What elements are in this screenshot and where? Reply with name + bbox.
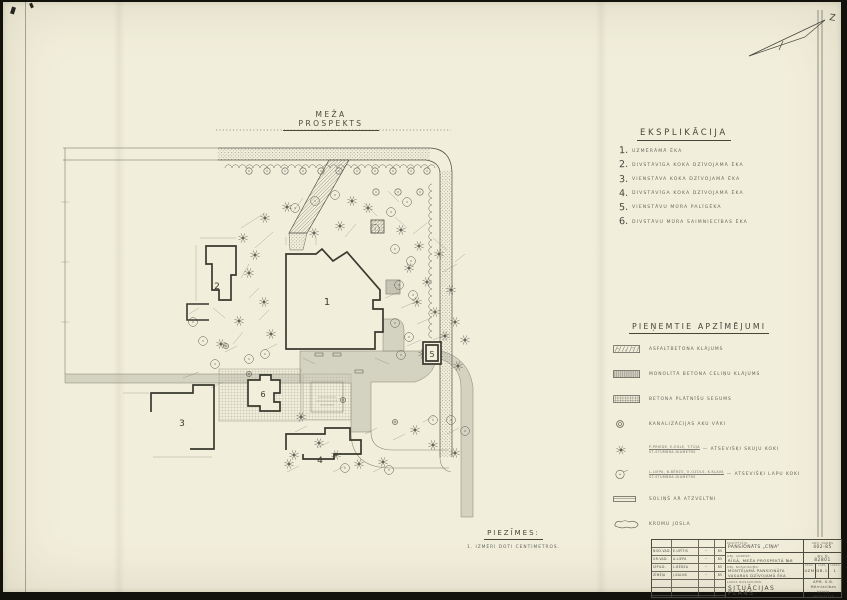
signature-row: ZĪMĒJA J.KALNS ~ 85 bbox=[652, 572, 725, 580]
explication-item-number: 4. bbox=[619, 189, 632, 198]
explication-item-number: 5. bbox=[619, 203, 632, 212]
client-cell: PASŪTĪTĀJS: PANSIONĀTS „CĪŅA” bbox=[726, 540, 804, 553]
legend-item-species: P-PRIEDE, E-EGLE, T-TŪJAST-STUMBRA DIAME… bbox=[649, 445, 700, 455]
sheet: 123456 MEŽA PROSPEKTS Z EKSPLIKĀCIJA 1. … bbox=[3, 2, 841, 592]
street-label: MEŽA PROSPEKTS bbox=[283, 110, 379, 131]
notes-block: PIEZĪMES: 1. IZMĒRI DOTI CENTIMETROS. bbox=[441, 520, 586, 550]
legend-swatch-deciduous-icon bbox=[613, 465, 649, 484]
legend-item-text: KANALIZĀCIJAS AKU VĀKI bbox=[649, 422, 726, 427]
notes-heading: PIEZĪMES: bbox=[484, 529, 543, 540]
signature-date: 85 bbox=[715, 556, 725, 563]
legend-item-text: MONOLĪTĀ BETONA CELIŅU KLĀJUMS bbox=[649, 372, 760, 377]
building-label: 1 bbox=[324, 297, 330, 308]
legend-item-text: BETONA PLĀTNĪŠU SEGUMS bbox=[649, 397, 732, 402]
legend-swatch-shrub-icon bbox=[613, 515, 649, 534]
legend-block: PIEŅEMTIE APZĪMĒJUMI ASFALTBETONA KLĀJUM… bbox=[613, 314, 847, 534]
explication-item-text: DIVSTĀVU MŪRA SAIMNIECĪBAS ĒKA bbox=[632, 217, 748, 225]
address-value: RĪGĀ, MEŽA PROSPEKTĀ №8 bbox=[726, 558, 803, 563]
building-label: 5 bbox=[429, 350, 434, 359]
legend-item: BETONA PLĀTNĪŠU SEGUMS bbox=[613, 390, 847, 409]
signature-mark bbox=[699, 596, 715, 597]
explication-block: EKSPLIKĀCIJA 1. UZMĒRĀMĀ ĒKA2. DIVSTĀVĪG… bbox=[619, 120, 784, 226]
stage-value: UZM bbox=[804, 568, 815, 573]
order-label: ARH. DARBS bbox=[804, 540, 841, 545]
signature-date: 85 bbox=[715, 548, 725, 555]
legend-item-text: — ATSEVIŠĶI LAPU KOKI bbox=[727, 472, 800, 477]
legend-swatch-asphalt-icon bbox=[613, 340, 649, 359]
signature-section: NOD.VAD. E.UPĪTIS ~ 85GR.VAD. A.LIEPA ~ … bbox=[652, 540, 726, 597]
legend-swatch-slabs-icon bbox=[613, 390, 649, 409]
signature-name bbox=[672, 540, 699, 547]
signature-name: E.UPĪTIS bbox=[672, 548, 699, 555]
signature-name: A.LIEPA bbox=[672, 556, 699, 563]
north-label: Z bbox=[829, 13, 837, 24]
sheet-value: DB-1 bbox=[816, 568, 828, 573]
legend-item: MONOLĪTĀ BETONA CELIŅU KLĀJUMS bbox=[613, 365, 847, 384]
signature-name bbox=[672, 580, 699, 587]
signature-row bbox=[652, 588, 725, 596]
building-label: 3 bbox=[179, 419, 185, 429]
explication-items: 1. UZMĒRĀMĀ ĒKA2. DIVSTĀVĪGA KOKA DZĪVOJ… bbox=[619, 146, 784, 226]
inventory-value: 82801 bbox=[804, 558, 841, 563]
explication-item-text: VIENSTĀVU MŪRA PALĪGĒKA bbox=[632, 203, 722, 211]
legend-item-text: KRŪMU JOSLA bbox=[649, 522, 691, 527]
explication-item-text: DIVSTĀVĪGA KOKA DZĪVOJAMĀ ĒKA bbox=[632, 189, 744, 197]
sheetname-cell: LAPAS NOSAUKUMS: SITUĀCIJAS PLĀNS bbox=[726, 579, 804, 597]
explication-item-number: 6. bbox=[619, 217, 632, 226]
signature-row: GR.VAD. A.LIEPA ~ 85 bbox=[652, 556, 725, 564]
signature-mark: ~ bbox=[699, 572, 715, 579]
explication-item-text: UZMĒRĀMĀ ĒKA bbox=[632, 146, 682, 154]
order-value: 402-85 bbox=[804, 545, 841, 550]
signature-date bbox=[715, 596, 725, 597]
address-label: OBJ. ADRESE: bbox=[726, 553, 803, 558]
sheetname-value: SITUĀCIJAS PLĀNS bbox=[726, 584, 803, 596]
title-block: NOD.VAD. E.UPĪTIS ~ 85GR.VAD. A.LIEPA ~ … bbox=[651, 539, 842, 598]
org-line2: Mērniecības birojs bbox=[804, 585, 841, 595]
signature-row: NOD.VAD. E.UPĪTIS ~ 85 bbox=[652, 548, 725, 556]
sheet-label: LAPA bbox=[816, 564, 828, 568]
explication-item-text: VIENSTĀVA KOKA DZĪVOJAMĀ ĒKA bbox=[632, 175, 740, 183]
signature-row bbox=[652, 540, 725, 548]
note-line: 1. IZMĒRI DOTI CENTIMETROS. bbox=[441, 545, 586, 550]
signature-role: NOD.VAD. bbox=[652, 548, 672, 555]
building-label: 6 bbox=[260, 390, 265, 399]
inventory-cell: INV. № 82801 bbox=[804, 553, 841, 564]
object-label: OBJ. NOSAUKUMS: bbox=[726, 564, 803, 569]
north-arrow-icon: Z bbox=[741, 6, 845, 62]
building-label: 2 bbox=[214, 282, 220, 292]
client-value: PANSIONĀTS „CĪŅA” bbox=[726, 545, 803, 550]
signature-name bbox=[672, 596, 699, 597]
signature-mark bbox=[699, 540, 715, 547]
legend-item-species: L-LIEPA, B-BĒRZS, O-OZOLS, K-KĻAVAST-STU… bbox=[649, 470, 724, 480]
signature-date: 85 bbox=[715, 572, 725, 579]
legend-items: ASFALTBETONA KLĀJUMS MONOLĪTĀ BETONA CEL… bbox=[613, 340, 847, 534]
signature-row bbox=[652, 596, 725, 597]
signature-date bbox=[715, 588, 725, 595]
sheets-label: LAPAS bbox=[829, 564, 841, 568]
legend-item: L-LIEPA, B-BĒRZS, O-OZOLS, K-KĻAVAST-STU… bbox=[613, 465, 847, 484]
client-label: PASŪTĪTĀJS: bbox=[726, 540, 803, 545]
explication-item: 1. UZMĒRĀMĀ ĒKA bbox=[619, 146, 784, 155]
signature-name bbox=[672, 588, 699, 595]
legend-item: KRŪMU JOSLA bbox=[613, 515, 847, 534]
explication-item: 5. VIENSTĀVU MŪRA PALĪGĒKA bbox=[619, 203, 784, 212]
signature-mark: ~ bbox=[699, 564, 715, 571]
explication-item-number: 1. bbox=[619, 146, 632, 155]
legend-swatch-concrete-icon bbox=[613, 365, 649, 384]
signature-role bbox=[652, 596, 672, 597]
explication-item: 3. VIENSTĀVA KOKA DZĪVOJAMĀ ĒKA bbox=[619, 175, 784, 184]
legend-item: ASFALTBETONA KLĀJUMS bbox=[613, 340, 847, 359]
signature-date: 85 bbox=[715, 564, 725, 571]
organization-cell: APM. K.B. Mērniecības birojs INSTITŪTS bbox=[804, 579, 841, 597]
signature-row: IZPILD. L.BĒRZA ~ 85 bbox=[652, 564, 725, 572]
org-line3: INSTITŪTS bbox=[804, 595, 841, 597]
explication-heading: EKSPLIKĀCIJA bbox=[637, 128, 731, 141]
explication-item-number: 3. bbox=[619, 174, 632, 183]
object-cell: OBJ. NOSAUKUMS: MONTĒJAMĀ PANSIONĀTA VAS… bbox=[726, 564, 804, 579]
legend-swatch-manhole-icon bbox=[613, 415, 649, 434]
stage-cell: STAD. UZM bbox=[804, 564, 816, 579]
legend-item: P-PRIEDE, E-EGLE, T-TŪJAST-STUMBRA DIAME… bbox=[613, 440, 847, 459]
legend-item-text: ASFALTBETONA KLĀJUMS bbox=[649, 347, 723, 352]
signature-role bbox=[652, 588, 672, 595]
signature-role bbox=[652, 580, 672, 587]
signature-role: GR.VAD. bbox=[652, 556, 672, 563]
signature-role: ZĪMĒJA bbox=[652, 572, 672, 579]
signature-row bbox=[652, 580, 725, 588]
legend-heading: PIEŅEMTIE APZĪMĒJUMI bbox=[629, 322, 769, 334]
explication-item: 4. DIVSTĀVĪGA KOKA DZĪVOJAMĀ ĒKA bbox=[619, 189, 784, 198]
order-cell: ARH. DARBS 402-85 bbox=[804, 540, 841, 553]
signature-date bbox=[715, 540, 725, 547]
signature-mark bbox=[699, 588, 715, 595]
sheets-value: 1 bbox=[829, 568, 841, 573]
legend-item: SOLIŅŠ AR ATZVELTNI bbox=[613, 490, 847, 509]
legend-item-text: — ATSEVIŠĶI SKUJU KOKI bbox=[703, 447, 779, 452]
signature-name: L.BĒRZA bbox=[672, 564, 699, 571]
signature-name: J.KALNS bbox=[672, 572, 699, 579]
legend-swatch-conifer-icon bbox=[613, 440, 649, 459]
legend-item: KANALIZĀCIJAS AKU VĀKI bbox=[613, 415, 847, 434]
legend-item-text: SOLIŅŠ AR ATZVELTNI bbox=[649, 497, 716, 502]
signature-mark: ~ bbox=[699, 548, 715, 555]
address-cell: OBJ. ADRESE: RĪGĀ, MEŽA PROSPEKTĀ №8 bbox=[726, 553, 804, 564]
explication-item-number: 2. bbox=[619, 160, 632, 169]
signature-mark bbox=[699, 580, 715, 587]
explication-item: 2. DIVSTĀVĪGA KOKA DZĪVOJAMĀ ĒKA bbox=[619, 160, 784, 169]
sheetname-label: LAPAS NOSAUKUMS: bbox=[726, 579, 803, 584]
legend-swatch-bench-icon bbox=[613, 490, 649, 509]
signature-date bbox=[715, 580, 725, 587]
sheet-cell: LAPA DB-1 bbox=[816, 564, 829, 579]
signature-role bbox=[652, 540, 672, 547]
stage-label: STAD. bbox=[804, 564, 815, 568]
explication-item-text: DIVSTĀVĪGA KOKA DZĪVOJAMĀ ĒKA bbox=[632, 160, 744, 168]
signature-rows: NOD.VAD. E.UPĪTIS ~ 85GR.VAD. A.LIEPA ~ … bbox=[652, 540, 725, 597]
sheets-cell: LAPAS 1 bbox=[829, 564, 841, 579]
building-label: 4 bbox=[317, 456, 323, 466]
signature-mark: ~ bbox=[699, 556, 715, 563]
signature-role: IZPILD. bbox=[652, 564, 672, 571]
inventory-label: INV. № bbox=[804, 553, 841, 558]
explication-item: 6. DIVSTĀVU MŪRA SAIMNIECĪBAS ĒKA bbox=[619, 217, 784, 226]
